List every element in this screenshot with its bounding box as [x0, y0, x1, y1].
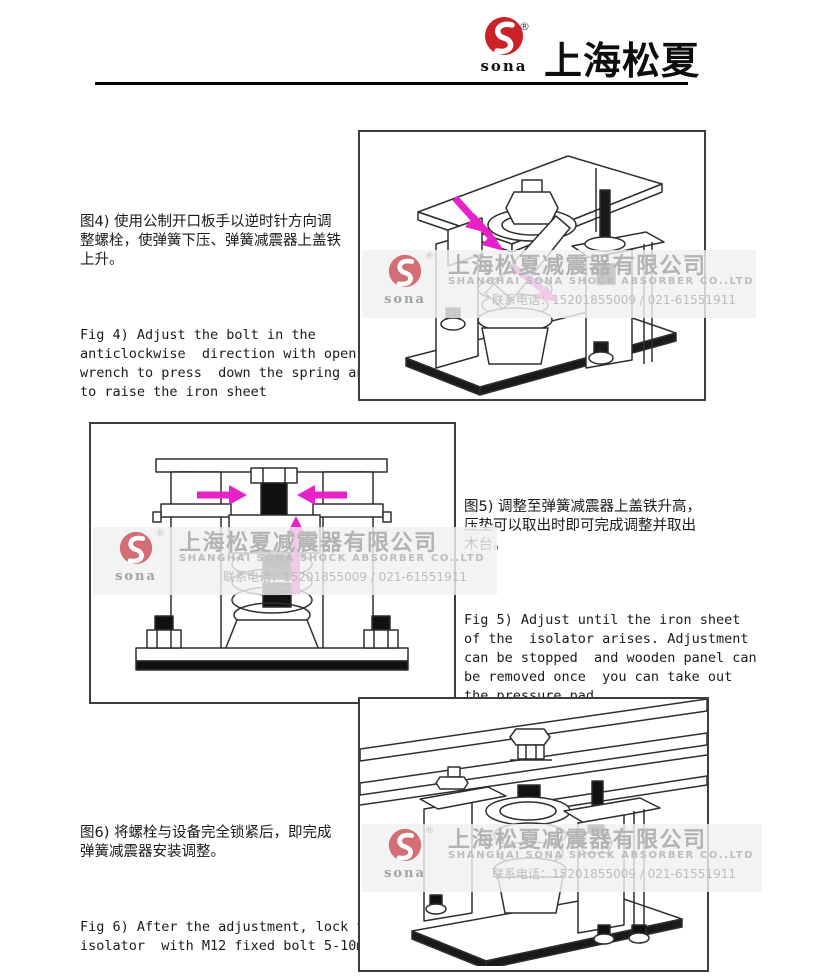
brand-title: 上海松夏 — [544, 30, 700, 85]
watermark: ® sona 上海松夏减震器有限公司 SHANGHAI SONA SHOCK A… — [362, 250, 756, 318]
watermark-company-en: SHANGHAI SONA SHOCK ABSORBER CO..LTD — [179, 553, 485, 564]
fig6-caption-cn: 图6) 将螺栓与设备完全锁紧后，即完成 弹簧减震器安装调整。 — [80, 824, 381, 862]
watermark-wordmark: sona — [362, 292, 448, 307]
fig4-caption-en: Fig 4) Adjust the bolt in the anticlockw… — [80, 326, 373, 402]
watermark: ® sona 上海松夏减震器有限公司 SHANGHAI SONA SHOCK A… — [362, 824, 762, 892]
sona-watermark-logo-icon: ® sona — [362, 250, 448, 307]
fig4-illustration: ® sona 上海松夏减震器有限公司 SHANGHAI SONA SHOCK A… — [358, 130, 706, 401]
watermark-contact: 联系电话：15201855009 / 021-61551911 — [492, 865, 754, 882]
watermark-text: 上海松夏减震器有限公司 SHANGHAI SONA SHOCK ABSORBER… — [448, 250, 754, 308]
watermark-contact: 联系电话：15201855009 / 021-61551911 — [492, 291, 754, 308]
fig4-caption-cn: 图4) 使用公制开口板手以逆时针方向调 整螺栓，使弹簧下压、弹簧减震器上盖铁 上… — [80, 213, 373, 270]
watermark-wordmark: sona — [362, 866, 448, 881]
fig6-illustration: ® sona 上海松夏减震器有限公司 SHANGHAI SONA SHOCK A… — [358, 697, 709, 972]
fig5-caption-cn: 图5) 调整至弹簧减震器上盖铁升高， 压垫可以取出时即可完成调整并取出 木台。 — [464, 498, 757, 555]
fig6-caption: 图6) 将螺栓与设备完全锁紧后，即完成 弹簧减震器安装调整。 Fig 6) Af… — [80, 786, 381, 977]
watermark-contact: 联系电话：15201855009 / 021-61551911 — [223, 568, 485, 585]
watermark-company-en: SHANGHAI SONA SHOCK ABSORBER CO..LTD — [448, 276, 754, 287]
header-divider — [95, 82, 688, 85]
fig5-caption-en: Fig 5) Adjust until the iron sheet of th… — [464, 611, 757, 706]
watermark-company-en: SHANGHAI SONA SHOCK ABSORBER CO..LTD — [448, 850, 754, 861]
logo-wordmark: sona — [472, 57, 536, 75]
sona-watermark-logo-icon: ® sona — [362, 824, 448, 881]
registered-trademark-icon: ® — [156, 529, 165, 539]
sona-watermark-logo-icon: ® sona — [93, 527, 179, 584]
sona-logo-circle-icon — [484, 16, 524, 56]
watermark-text: 上海松夏减震器有限公司 SHANGHAI SONA SHOCK ABSORBER… — [179, 527, 485, 585]
fig4-caption: 图4) 使用公制开口板手以逆时针方向调 整螺栓，使弹簧下压、弹簧减震器上盖铁 上… — [80, 175, 373, 440]
registered-trademark-icon: ® — [425, 252, 434, 262]
fig6-caption-en: Fig 6) After the adjustment, lock the is… — [80, 918, 381, 956]
watermark-text: 上海松夏减震器有限公司 SHANGHAI SONA SHOCK ABSORBER… — [448, 824, 754, 882]
watermark: ® sona 上海松夏减震器有限公司 SHANGHAI SONA SHOCK A… — [93, 527, 497, 595]
watermark-wordmark: sona — [93, 569, 179, 584]
registered-trademark-icon: ® — [519, 20, 530, 33]
fig5-illustration: ® sona 上海松夏减震器有限公司 SHANGHAI SONA SHOCK A… — [89, 422, 456, 704]
registered-trademark-icon: ® — [425, 826, 434, 836]
manual-page: sona ® 上海松夏 图4) 使用公制开口板手以逆时针方向调 整螺栓，使弹簧下… — [0, 0, 813, 977]
